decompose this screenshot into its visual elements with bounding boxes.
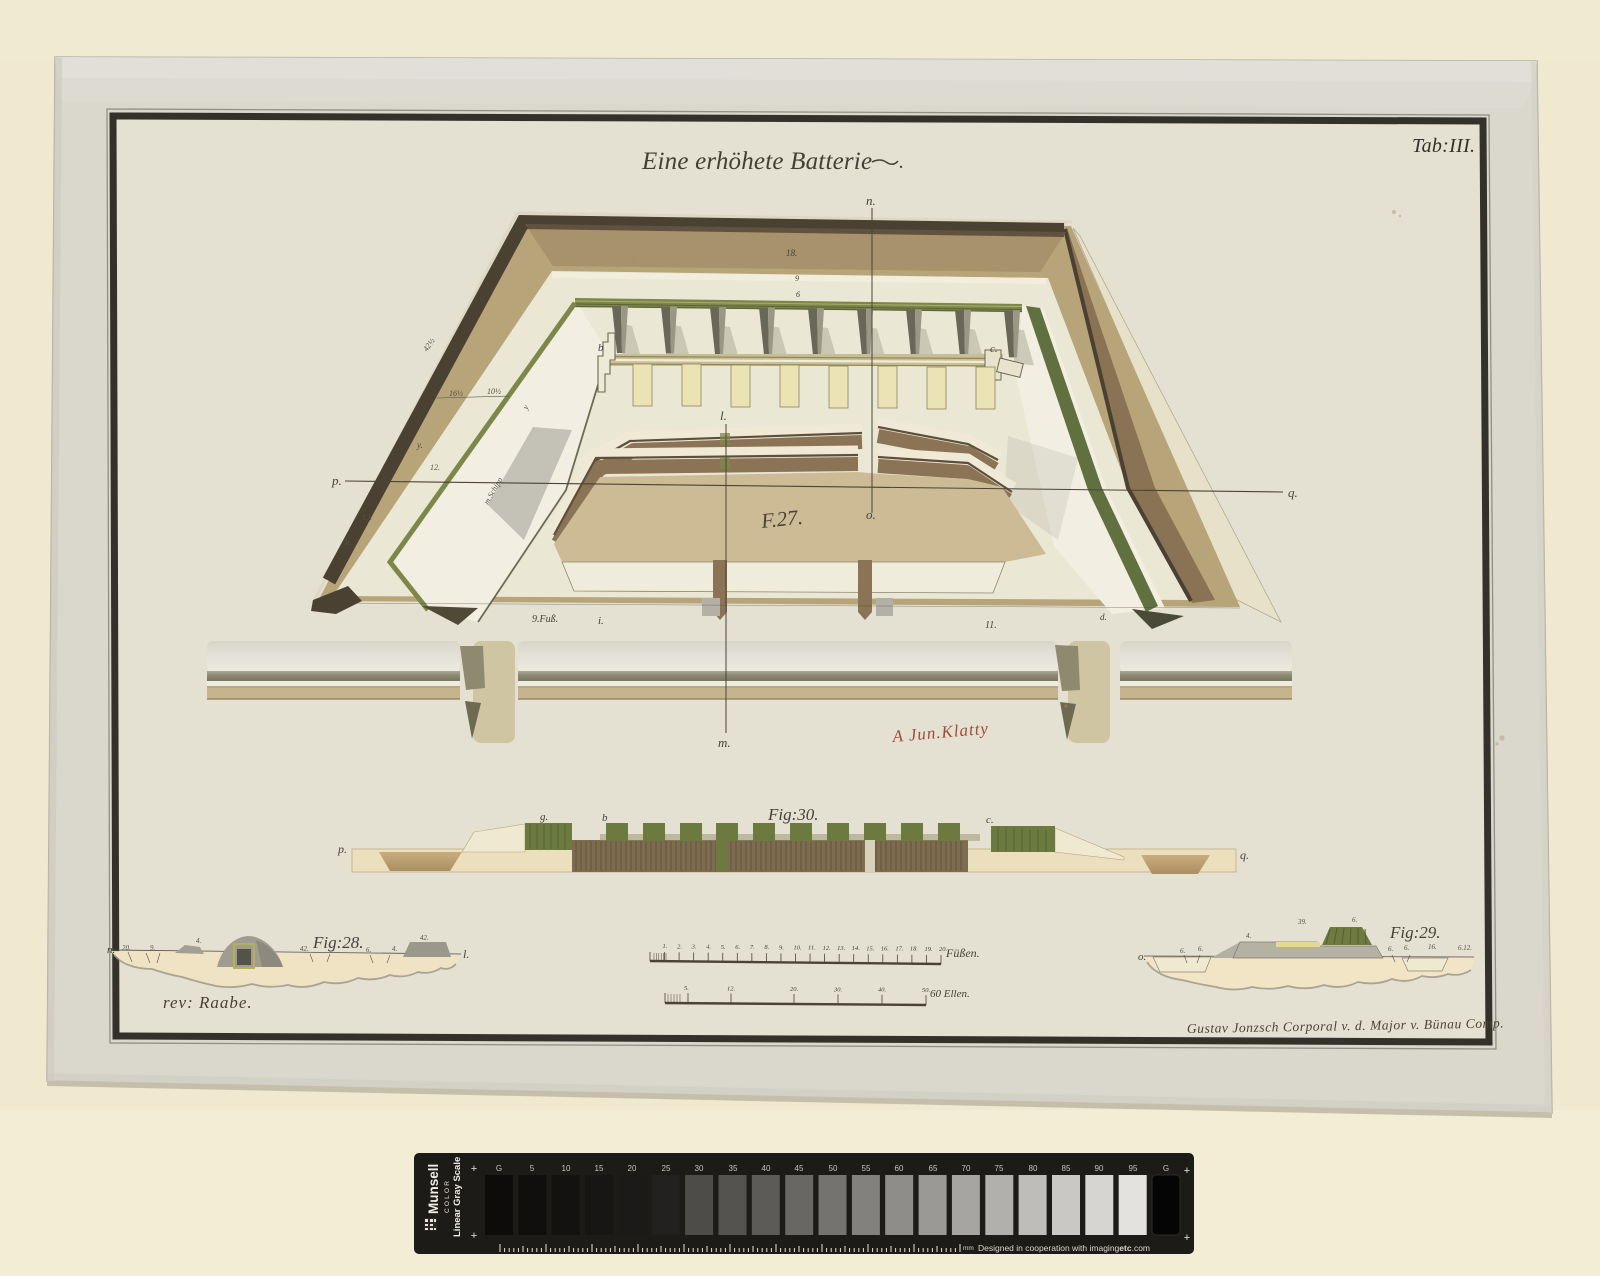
svg-text:6.: 6. [366,946,372,954]
svg-text:11.: 11. [808,945,816,952]
svg-text:42.: 42. [300,945,309,953]
svg-text:q.: q. [1288,485,1298,500]
svg-text:.: . [899,151,904,173]
svg-text:5: 5 [530,1164,535,1173]
svg-text:6.: 6. [1198,945,1204,953]
svg-text:6.: 6. [1404,944,1410,952]
svg-text:b.: b. [345,538,351,547]
svg-text:Fig:29.: Fig:29. [1389,923,1441,942]
svg-text:+: + [1184,1232,1190,1244]
svg-text:15: 15 [595,1164,604,1173]
svg-text:9.Fuß.: 9.Fuß. [532,614,558,625]
svg-text:Linear Gray Scale: Linear Gray Scale [452,1157,463,1237]
svg-text:Fig:28.: Fig:28. [312,933,364,952]
svg-text:rev: Raabe.: rev: Raabe. [163,993,253,1012]
svg-text:G: G [1163,1164,1169,1173]
svg-text:i.: i. [598,615,604,627]
svg-text:6: 6 [796,290,800,299]
svg-text:50.: 50. [922,987,931,994]
svg-text:4.: 4. [196,937,202,945]
svg-text:15.: 15. [866,945,875,952]
svg-text:12.: 12. [727,986,736,993]
svg-text:5.: 5. [684,985,689,992]
svg-text:60: 60 [895,1164,904,1173]
svg-text:4.: 4. [1246,932,1252,940]
svg-text:39.: 39. [1297,918,1307,926]
svg-text:6.: 6. [1388,945,1394,953]
svg-text:6.: 6. [1352,916,1358,924]
svg-text:75: 75 [995,1164,1004,1173]
svg-text:+: + [471,1163,477,1175]
svg-text:20.: 20. [790,986,799,993]
svg-text:l.: l. [463,947,469,961]
svg-text:17.: 17. [895,946,904,953]
svg-text:10: 10 [562,1164,571,1173]
svg-text:q.: q. [1240,848,1249,862]
svg-text:d.: d. [1100,612,1107,622]
svg-text:18.: 18. [910,946,919,953]
svg-text:42.: 42. [420,934,429,942]
svg-text:8.: 8. [764,944,769,951]
svg-text:G: G [496,1164,502,1173]
svg-text:4.: 4. [706,944,711,951]
svg-text:m.: m. [718,735,731,750]
svg-text:20.: 20. [939,946,948,953]
svg-text:40: 40 [762,1164,771,1173]
svg-text:5.: 5. [721,944,726,951]
svg-text:60 Ellen.: 60 Ellen. [930,988,970,1000]
svg-text:Tab:III.: Tab:III. [1412,135,1475,157]
svg-text:30.: 30. [833,986,843,993]
svg-text:9.: 9. [779,944,784,951]
svg-text:9: 9 [795,274,799,283]
svg-text:9.: 9. [150,944,156,952]
svg-text:4.: 4. [392,945,398,953]
svg-text:l.: l. [720,408,727,423]
svg-text:6.: 6. [1180,947,1186,955]
svg-text:90: 90 [1095,1164,1104,1173]
svg-text:Designed in cooperation with i: Designed in cooperation with imagingetc.… [978,1243,1150,1253]
svg-text:+: + [1184,1165,1190,1177]
svg-text:70: 70 [962,1164,971,1173]
svg-text:n.: n. [866,193,876,208]
svg-text:45: 45 [795,1164,804,1173]
svg-text:16½: 16½ [449,389,463,398]
svg-text:20: 20 [628,1164,637,1173]
svg-text:35: 35 [729,1164,738,1173]
svg-text:95: 95 [1129,1164,1138,1173]
svg-text:6.: 6. [735,944,740,951]
svg-text:12.: 12. [430,463,440,472]
svg-text:COLOR: COLOR [444,1179,451,1213]
svg-text:19.: 19. [924,946,933,953]
svg-text:14.: 14. [852,945,861,952]
svg-text:2.: 2. [677,943,682,950]
svg-text:55: 55 [862,1164,871,1173]
svg-text:Eine erhöhete Batterie: Eine erhöhete Batterie [641,148,872,175]
svg-text:10½: 10½ [487,387,501,396]
svg-text:30: 30 [695,1164,704,1173]
svg-text:b: b [598,342,604,354]
svg-text:40.: 40. [878,987,887,994]
svg-text:Munsell: Munsell [426,1164,441,1214]
svg-text:Füßen.: Füßen. [945,946,980,960]
svg-text:b: b [602,812,608,824]
svg-text:o.: o. [1138,951,1146,963]
svg-text:6.12.: 6.12. [1458,944,1472,952]
svg-text:g.: g. [540,811,548,823]
svg-text:50: 50 [829,1164,838,1173]
svg-text:16.: 16. [881,945,890,952]
svg-text:1.: 1. [663,943,668,950]
svg-text:18.: 18. [786,248,797,258]
svg-text:25: 25 [662,1164,671,1173]
svg-text:12.: 12. [823,945,832,952]
svg-text:n.: n. [107,944,115,956]
svg-text:20.: 20. [122,944,131,952]
svg-text:80: 80 [1029,1164,1038,1173]
svg-text:10.: 10. [794,945,803,952]
svg-text:c.: c. [986,814,994,826]
svg-text:7.: 7. [750,944,755,951]
svg-text:+: + [471,1230,477,1242]
svg-text:mm: mm [963,1245,974,1252]
svg-text:16.: 16. [1428,943,1437,951]
svg-text:p.: p. [331,473,342,488]
svg-text:c.: c. [990,343,998,355]
svg-text:11.: 11. [985,620,997,631]
svg-text:65: 65 [929,1164,938,1173]
svg-text:F.27.: F.27. [759,505,804,533]
svg-text:13.: 13. [837,945,846,952]
svg-text:y.: y. [416,440,423,450]
svg-text:p.: p. [337,842,347,856]
svg-text:12.: 12. [362,513,372,522]
svg-text:Fig:30.: Fig:30. [767,805,819,824]
svg-text:3.: 3. [691,943,697,950]
svg-text:o.: o. [866,507,876,522]
svg-text:85: 85 [1062,1164,1071,1173]
